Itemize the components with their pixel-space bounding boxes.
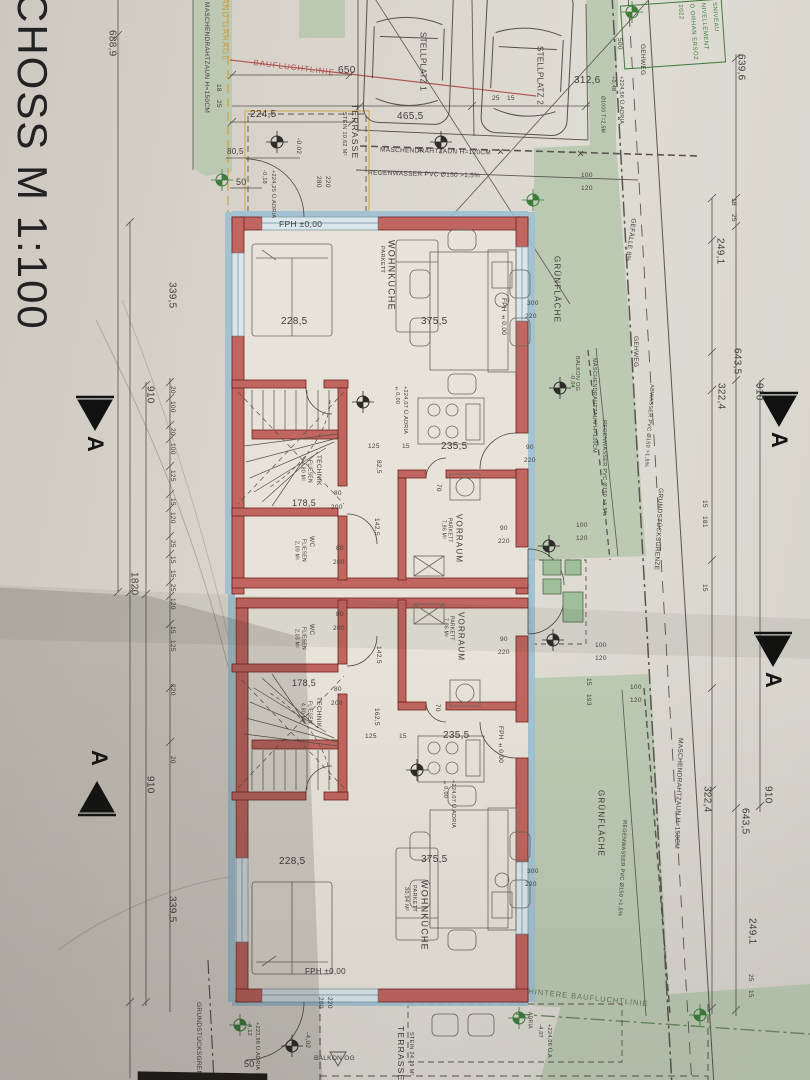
dim: 300	[527, 301, 539, 308]
level: +224,06 Ü.A	[545, 1024, 551, 1058]
dim: 200	[331, 505, 343, 512]
dim: 322,4	[701, 786, 712, 813]
room-wc-top-floor: FLIESEN	[300, 539, 305, 562]
dim: 100	[595, 643, 607, 650]
dim: 142,5	[372, 518, 379, 536]
dim: 25	[168, 584, 175, 592]
dim: 82,5	[374, 460, 381, 474]
level: +224,07 Ü.ADRIA	[401, 386, 407, 434]
room-terrasse-bottom: TERRASSE	[396, 1026, 405, 1080]
dim: 312,6	[574, 76, 601, 87]
stellplatz-2-label: STELLPLATZ 2	[535, 46, 543, 105]
dim: 639,6	[735, 54, 746, 81]
dim: 220	[323, 176, 330, 188]
gruenflaeche-label: GRÜNFLÄCHE	[552, 256, 560, 323]
dim: 18	[729, 198, 736, 206]
room-technik-top: TECHNIK	[314, 455, 321, 486]
room-wc-bottom-area: 2,03 M²	[293, 629, 298, 648]
dim: 15	[399, 734, 407, 741]
room-wohnkueche-bottom-floor: PARKETT	[410, 885, 416, 912]
grenze-label: GRUNDSTÜCKSGRENZE	[194, 1002, 201, 1080]
dim: 15	[168, 498, 175, 506]
dim: 220	[525, 882, 537, 889]
dim: 200	[333, 626, 345, 633]
dim: 142,5	[374, 646, 381, 664]
dim: 910	[762, 786, 773, 804]
room-vorraum-bottom-floor: PARKETT	[448, 616, 453, 641]
level: ADRIA	[526, 1012, 531, 1029]
dim: 688,9	[106, 30, 117, 57]
dim: 80	[336, 546, 344, 553]
dim: 125	[168, 640, 175, 652]
dim: 80	[334, 491, 342, 498]
dim: 25	[746, 974, 753, 982]
dim: 235,5	[443, 731, 470, 742]
building-floor	[232, 216, 528, 1002]
dim: 220	[325, 997, 332, 1009]
dim: 220	[525, 314, 537, 321]
room-wohnkueche-bottom: WOHNKÜCHE	[419, 880, 428, 951]
room-vorraum-bottom: VORRAUM	[456, 612, 464, 661]
room-technik-top-floor: FLIESEN	[306, 460, 311, 483]
dim: 339,5	[166, 896, 177, 923]
dim: 90	[500, 526, 508, 533]
dim: 18	[214, 84, 221, 92]
level: -0,04	[568, 374, 574, 388]
dim: 20	[168, 756, 175, 764]
dim: 20	[168, 428, 175, 436]
tree-note: Ø1000 T=2,5M	[599, 96, 604, 133]
dim: 15	[700, 500, 707, 508]
gehweg-label: GEHWEG	[638, 44, 645, 75]
dim: 25	[492, 96, 500, 103]
dim: 643,5	[739, 808, 750, 835]
dim: 910	[144, 776, 155, 794]
dim: 910	[753, 383, 764, 401]
room-terrasse-top: TERRASSE	[350, 104, 359, 159]
dim: 80,5	[227, 148, 244, 156]
floorplan-photo: CHOSS M 1:100 SNIVEAU NIVELLEMENT O ORHA…	[0, 0, 810, 1080]
level: ±0,00	[441, 780, 447, 798]
dim: 15	[168, 570, 175, 578]
room-technik-bottom: TECHNIK	[314, 697, 321, 728]
room-technik-bottom-area: 4,80 M²	[299, 703, 304, 722]
dim: 220	[524, 458, 536, 465]
level: ±0,00	[393, 386, 399, 404]
dim: 70	[434, 484, 441, 492]
dim: 120	[630, 698, 642, 705]
dim: 120	[168, 512, 175, 524]
dim: 15	[168, 556, 175, 564]
level: -4,07	[536, 1024, 542, 1038]
fence-150-label: MASCHENDRAHTZAUN H=150CM	[202, 2, 209, 113]
room-wohnkueche-top: WOHNKÜCHE	[386, 240, 395, 311]
level: +223,98 Ü.ADRIA	[253, 1022, 259, 1070]
room-wohnkueche-top-floor: PARKETT	[378, 246, 384, 273]
fph-label: FPH ±0,00	[305, 968, 346, 976]
dim: 100	[168, 443, 175, 455]
dim: 20	[168, 386, 175, 394]
room-vorraum-top: VORRAUM	[454, 514, 462, 563]
level: -4,12	[245, 1022, 251, 1036]
dim: 280	[314, 176, 321, 188]
room-wc-bottom-floor: FLIESEN	[300, 627, 305, 650]
dim: 220	[498, 650, 510, 657]
room-technik-bottom-floor: FLIESEN	[306, 701, 311, 724]
dim: 50	[236, 178, 247, 187]
dim: 322,4	[715, 383, 726, 410]
section-label: A	[762, 672, 785, 688]
dim: 70	[433, 704, 440, 712]
dim: 15	[746, 990, 753, 998]
dim: 100	[630, 685, 642, 692]
dim: 220	[498, 539, 510, 546]
room-wc-bottom: WC	[307, 624, 314, 635]
dim: 650	[338, 66, 356, 77]
level: -0,02	[294, 138, 301, 154]
dim: 120	[576, 536, 588, 543]
dim: 25	[729, 214, 736, 222]
level: +224,56 Ü.ADRIA	[617, 76, 623, 124]
dim: 120	[581, 186, 593, 193]
balkon-og-label: BALKON OG	[314, 1056, 355, 1063]
dim: 228,5	[279, 857, 306, 868]
dim: 249,1	[746, 918, 757, 945]
fph-label: FPH ±0,00	[279, 220, 322, 229]
dim: 15	[700, 584, 707, 592]
dim: 235,5	[441, 442, 468, 453]
dim: 465,5	[397, 112, 424, 123]
room-wc-top: WC	[307, 536, 314, 547]
dim: 100	[581, 173, 593, 180]
plan-linework	[0, 0, 810, 1080]
level: +224,25 Ü.ADRIA	[269, 170, 275, 218]
dim: 25	[214, 100, 221, 108]
dim: 90	[526, 445, 534, 452]
level: -4,02	[303, 1032, 310, 1048]
fph-label: FPH ±0,00	[496, 726, 503, 763]
dim: 90	[500, 637, 508, 644]
room-vorraum-top-floor: PARKETT	[446, 518, 451, 543]
room-vorraum-bottom-area: 7,86 M²	[442, 618, 447, 637]
dim: 80	[336, 612, 344, 619]
dim: 910	[144, 386, 155, 404]
level: +0,48	[609, 76, 615, 91]
room-technik-top-area: 4,80 M²	[299, 462, 304, 481]
dim: 224,5	[250, 110, 277, 121]
dim: 80	[334, 687, 342, 694]
dim: 15	[402, 444, 410, 451]
regenwasser-label: REGENWASSER PVC Ø150 >1,5%	[600, 420, 606, 516]
dim: 125	[368, 444, 380, 451]
dim: 100	[168, 401, 175, 413]
dim: 25	[168, 540, 175, 548]
dim: 375,5	[421, 855, 448, 866]
abstand-label: ABSTAND GARAGE	[220, 0, 228, 62]
dim: 193	[584, 694, 591, 706]
dim: 178,5	[292, 499, 316, 508]
dim: 249,1	[714, 238, 725, 265]
room-vorraum-top-area: 7,86 M²	[440, 520, 445, 539]
dim: 200	[333, 560, 345, 567]
room-terrasse-top-info: STEIN 10,62 M²	[340, 112, 346, 156]
dim: 220	[168, 684, 175, 696]
dim: 181	[700, 516, 707, 528]
level: +224,07 Ü.ADRIA	[449, 780, 455, 828]
dim: 300	[527, 869, 539, 876]
dim: 15	[168, 626, 175, 634]
dim: 120	[595, 656, 607, 663]
car-2	[480, 0, 574, 136]
level: -0,18	[260, 170, 266, 184]
dim: 125	[168, 470, 175, 482]
gruenflaeche-label: GRÜNFLÄCHE	[596, 790, 604, 857]
fence-120-label: MASCHENDRAHTZAUN H=120CM	[590, 358, 596, 453]
stellplatz-1-label: STELLPLATZ 1	[418, 32, 426, 91]
dim: 228,5	[281, 317, 308, 328]
meter-boxes	[543, 560, 583, 622]
surveyor-stamp: SNIVEAU NIVELLEMENT O ORHAN ERSÖZ 2022	[620, 0, 726, 69]
dim: 162,5	[372, 708, 379, 726]
dim: 15	[584, 678, 591, 686]
dim: 280	[316, 997, 323, 1009]
dim: 15	[507, 96, 515, 103]
room-wohnkueche-bottom-area: 30,94 M²	[402, 887, 408, 911]
gehweg-label: GEHWEG	[631, 336, 638, 367]
room-terrasse-bottom-info: STEIN 24,19 M²	[407, 1032, 413, 1076]
room-wc-top-area: 2,09 M²	[293, 541, 298, 560]
section-label: A	[88, 750, 111, 766]
dim: 375,5	[421, 317, 448, 328]
dim: 120	[168, 598, 175, 610]
dim: 339,5	[166, 282, 177, 309]
dim: 643,5	[731, 348, 742, 375]
plan-title: CHOSS M 1:100	[10, 0, 54, 331]
fph-label: FPH ±0,00	[499, 298, 506, 335]
dim: 200	[331, 701, 343, 708]
dim: 1820	[128, 572, 139, 595]
dim: 500	[615, 38, 622, 50]
dim: 100	[576, 523, 588, 530]
dim: 125	[365, 734, 377, 741]
dim: 178,5	[292, 679, 316, 688]
section-label: A	[84, 436, 107, 452]
section-label: A	[768, 432, 791, 448]
